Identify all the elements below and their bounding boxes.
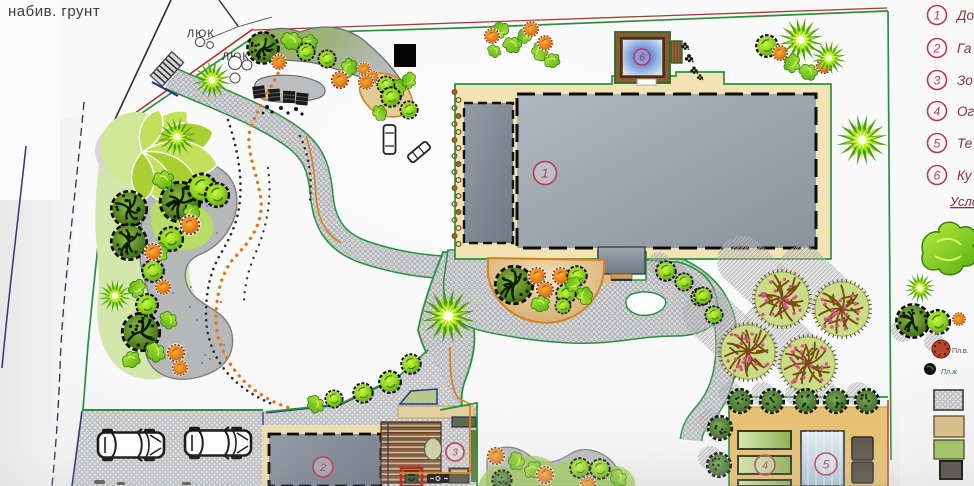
- svg-text:Пл.в.: Пл.в.: [952, 348, 969, 355]
- svg-text:4: 4: [934, 104, 941, 118]
- svg-text:Зо: Зо: [957, 73, 973, 88]
- svg-text:Те: Те: [957, 136, 972, 151]
- svg-text:Пл.ж: Пл.ж: [941, 369, 958, 376]
- svg-text:6: 6: [639, 53, 645, 64]
- svg-text:1: 1: [934, 8, 941, 22]
- svg-text:До: До: [955, 8, 974, 23]
- svg-text:Га: Га: [957, 41, 972, 56]
- svg-text:6: 6: [934, 168, 941, 182]
- svg-text:Усло: Усло: [949, 194, 974, 209]
- svg-text:Ог: Ог: [957, 104, 974, 119]
- svg-text:5: 5: [934, 136, 941, 150]
- svg-text:3: 3: [934, 73, 941, 87]
- svg-text:набив. грунт: набив. грунт: [8, 3, 100, 20]
- svg-text:2: 2: [933, 41, 941, 55]
- svg-text:1: 1: [541, 166, 548, 181]
- svg-text:Ку: Ку: [957, 168, 973, 183]
